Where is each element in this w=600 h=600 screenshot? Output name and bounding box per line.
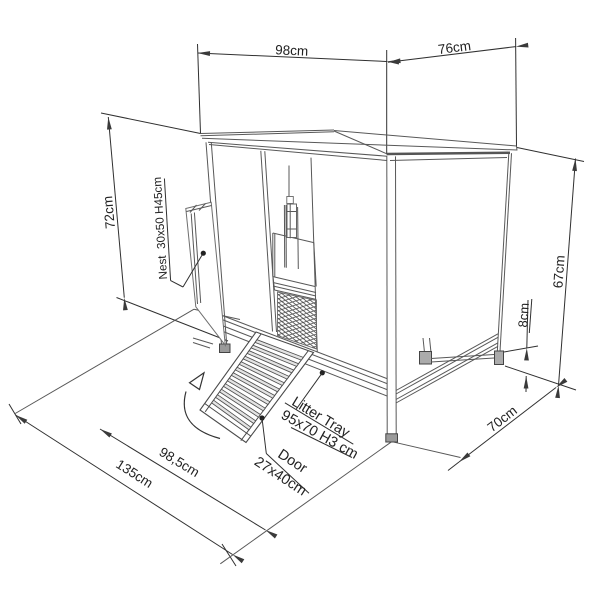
svg-text:98,5cm: 98,5cm xyxy=(157,444,203,480)
svg-text:76cm: 76cm xyxy=(437,38,472,57)
svg-text:8cm: 8cm xyxy=(515,302,532,328)
svg-text:67cm: 67cm xyxy=(550,255,567,289)
svg-text:135cm: 135cm xyxy=(113,457,155,491)
svg-text:98cm: 98cm xyxy=(275,42,309,58)
svg-text:72cm: 72cm xyxy=(100,195,118,229)
